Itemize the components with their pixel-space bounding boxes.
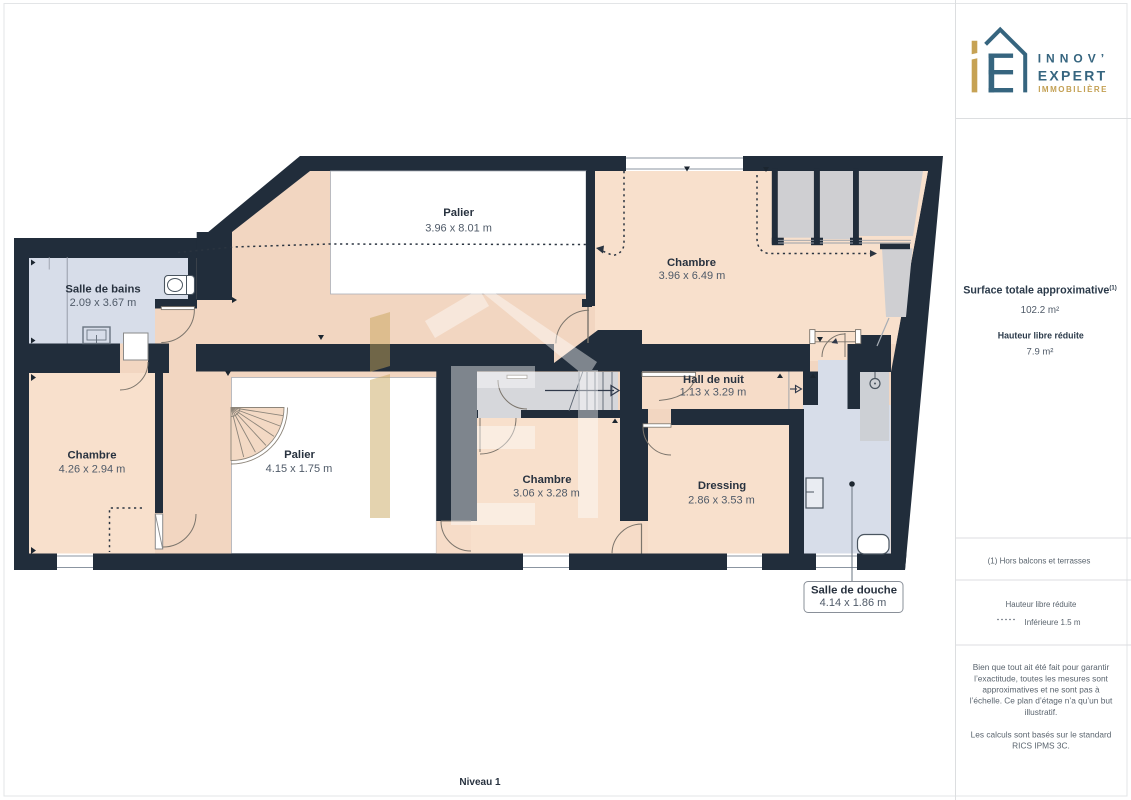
svg-text:INNOV’: INNOV’	[1038, 52, 1109, 66]
svg-text:102.2 m²: 102.2 m²	[1021, 305, 1060, 316]
svg-text:1.13 x 3.29 m: 1.13 x 3.29 m	[680, 387, 747, 399]
svg-text:Palier: Palier	[284, 449, 315, 461]
svg-text:Salle de bains: Salle de bains	[65, 284, 140, 296]
svg-text:Salle de douche: Salle de douche	[811, 585, 897, 597]
svg-text:Chambre: Chambre	[523, 474, 572, 486]
svg-text:3.06 x 3.28 m: 3.06 x 3.28 m	[513, 488, 580, 500]
svg-text:4.15 x 1.75 m: 4.15 x 1.75 m	[266, 463, 333, 475]
svg-text:Chambre: Chambre	[68, 450, 117, 462]
svg-text:3.96 x 8.01 m: 3.96 x 8.01 m	[425, 222, 492, 234]
svg-text:Dressing: Dressing	[698, 480, 746, 492]
svg-text:Hauteur libre réduite: Hauteur libre réduite	[1006, 600, 1077, 609]
svg-text:Inférieure 1.5 m: Inférieure 1.5 m	[1024, 618, 1080, 627]
svg-text:7.9 m²: 7.9 m²	[1027, 347, 1054, 358]
svg-text:Chambre: Chambre	[667, 257, 716, 269]
svg-text:Niveau 1: Niveau 1	[459, 777, 501, 788]
svg-text:EXPERT: EXPERT	[1038, 68, 1108, 84]
svg-text:2.09 x 3.67 m: 2.09 x 3.67 m	[70, 297, 137, 309]
svg-text:3.96 x 6.49 m: 3.96 x 6.49 m	[659, 270, 726, 282]
svg-text:Les calculs sont basés sur le: Les calculs sont basés sur le standard	[971, 729, 1112, 739]
svg-text:l’échelle. Ce plan d’étage n’a: l’échelle. Ce plan d’étage n’a qu’un but	[970, 696, 1113, 706]
svg-text:2.86 x 3.53 m: 2.86 x 3.53 m	[688, 495, 755, 507]
svg-text:l’exactitude, toutes les mesur: l’exactitude, toutes les mesures sont	[974, 673, 1108, 683]
svg-text:IMMOBILIÈRE: IMMOBILIÈRE	[1038, 85, 1108, 94]
svg-text:(1) Hors balcons et terrasses: (1) Hors balcons et terrasses	[988, 556, 1091, 565]
svg-text:4.26 x 2.94 m: 4.26 x 2.94 m	[59, 463, 126, 475]
svg-text:RICS IPMS 3C.: RICS IPMS 3C.	[1012, 741, 1070, 751]
svg-text:Bien que tout ait été fait pou: Bien que tout ait été fait pour garantir	[973, 662, 1110, 672]
svg-text:Palier: Palier	[443, 207, 474, 219]
svg-text:4.14 x 1.86 m: 4.14 x 1.86 m	[820, 597, 887, 609]
svg-text:illustratif.: illustratif.	[1025, 707, 1058, 717]
svg-text:Hauteur libre réduite: Hauteur libre réduite	[998, 331, 1084, 341]
svg-text:approximatives et ne sont pas: approximatives et ne sont pas à	[982, 685, 1100, 695]
svg-text:Surface totale approximative(1: Surface totale approximative(1)	[963, 285, 1116, 297]
svg-text:Hall de nuit: Hall de nuit	[683, 374, 744, 386]
